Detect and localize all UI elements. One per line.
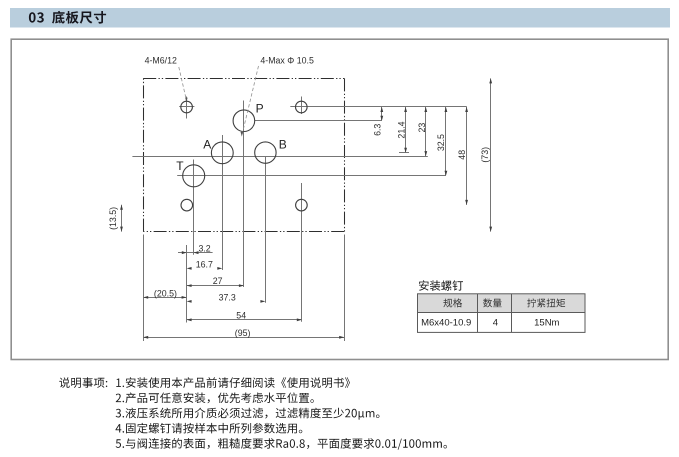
svg-text:48: 48 bbox=[457, 150, 467, 160]
svg-text:T: T bbox=[176, 159, 184, 173]
svg-text:16.7: 16.7 bbox=[196, 259, 213, 269]
svg-text:P: P bbox=[256, 101, 264, 115]
svg-text:27: 27 bbox=[213, 276, 223, 286]
svg-text:15Nm: 15Nm bbox=[534, 318, 559, 329]
svg-text:3.2: 3.2 bbox=[198, 244, 210, 254]
svg-text:23: 23 bbox=[417, 123, 427, 133]
svg-text:(95): (95) bbox=[235, 328, 251, 338]
svg-text:32.5: 32.5 bbox=[436, 134, 446, 151]
svg-text:(20.5): (20.5) bbox=[154, 288, 177, 298]
svg-text:37.3: 37.3 bbox=[219, 292, 236, 302]
svg-text:4-M6/12: 4-M6/12 bbox=[145, 55, 177, 65]
svg-text:B: B bbox=[279, 138, 287, 152]
svg-text:21.4: 21.4 bbox=[397, 121, 407, 138]
svg-text:54: 54 bbox=[236, 311, 246, 321]
svg-text:A: A bbox=[203, 138, 211, 152]
svg-text:4-Max Φ 10.5: 4-Max Φ 10.5 bbox=[260, 55, 314, 65]
svg-text:6.3: 6.3 bbox=[372, 124, 382, 136]
svg-text:(13.5): (13.5) bbox=[108, 207, 118, 230]
svg-text:4: 4 bbox=[493, 318, 498, 329]
svg-text:(73): (73) bbox=[480, 147, 490, 163]
svg-text:M6x40-10.9: M6x40-10.9 bbox=[421, 318, 471, 329]
